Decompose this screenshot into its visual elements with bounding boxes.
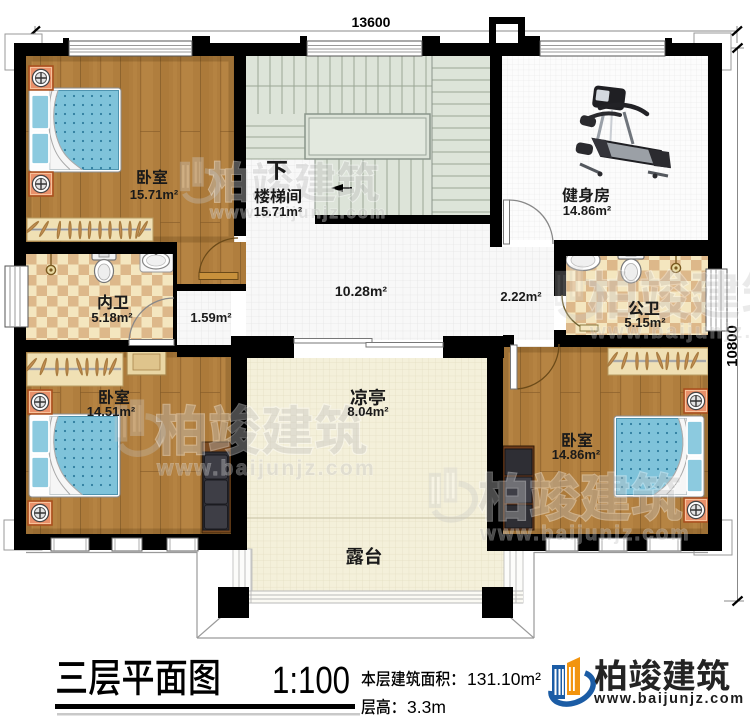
svg-text:14.86m²: 14.86m² xyxy=(563,203,612,218)
svg-text:5.18m²: 5.18m² xyxy=(91,310,133,325)
svg-text:1.59m²: 1.59m² xyxy=(190,310,232,325)
svg-text:www.baijunjz.com: www.baijunjz.com xyxy=(156,457,376,480)
svg-text:15.71m²: 15.71m² xyxy=(254,204,303,219)
svg-text:www.baijunjz.com: www.baijunjz.com xyxy=(593,691,745,707)
svg-text:2.22m²: 2.22m² xyxy=(500,289,542,304)
svg-text:www.baijunjz.com: www.baijunjz.com xyxy=(589,321,750,343)
svg-text:13600: 13600 xyxy=(352,14,391,30)
svg-text:15.71m²: 15.71m² xyxy=(130,187,179,202)
svg-text:14.51m²: 14.51m² xyxy=(87,404,136,419)
svg-text:5.15m²: 5.15m² xyxy=(624,315,666,330)
svg-text:10.28m²: 10.28m² xyxy=(335,283,387,299)
svg-text:3.3m: 3.3m xyxy=(407,697,446,717)
svg-text:14.86m²: 14.86m² xyxy=(552,447,601,462)
svg-text:131.10m²: 131.10m² xyxy=(467,669,541,689)
svg-text:8.04m²: 8.04m² xyxy=(347,404,389,419)
svg-text:www.baijunjz.com: www.baijunjz.com xyxy=(479,523,691,545)
svg-text:1:100: 1:100 xyxy=(272,660,350,702)
